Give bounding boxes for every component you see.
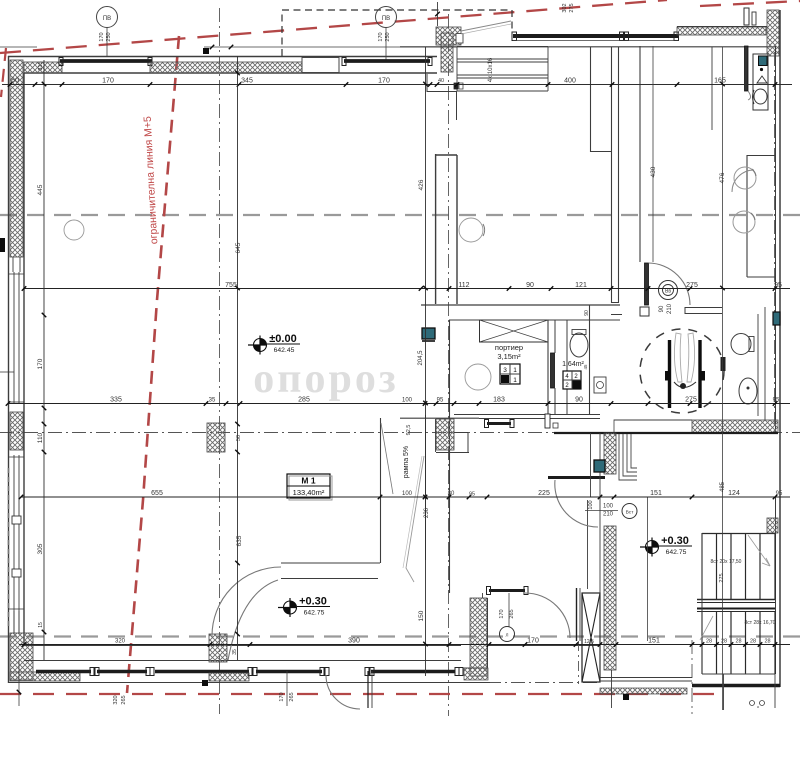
svg-text:642.75: 642.75 xyxy=(304,610,325,617)
svg-text:40: 40 xyxy=(438,78,444,84)
svg-text:90: 90 xyxy=(659,305,665,312)
svg-text:80: 80 xyxy=(448,491,455,497)
svg-text:28: 28 xyxy=(706,639,712,645)
svg-text:170: 170 xyxy=(527,638,539,645)
svg-text:100: 100 xyxy=(588,500,594,509)
svg-text:1: 1 xyxy=(513,367,517,374)
svg-text:390: 390 xyxy=(348,638,360,645)
svg-text:635: 635 xyxy=(236,535,243,546)
svg-text:236: 236 xyxy=(424,507,430,518)
svg-text:302: 302 xyxy=(562,3,568,12)
svg-text:305: 305 xyxy=(37,543,44,554)
svg-text:642.45: 642.45 xyxy=(274,347,295,354)
svg-text:45: 45 xyxy=(583,364,588,370)
svg-text:28: 28 xyxy=(721,639,727,645)
svg-text:335: 335 xyxy=(110,397,122,404)
svg-text:92,5: 92,5 xyxy=(406,425,412,436)
svg-text:151: 151 xyxy=(648,638,660,645)
svg-text:28: 28 xyxy=(735,639,741,645)
svg-text:1,64m²: 1,64m² xyxy=(562,361,584,368)
svg-text:250: 250 xyxy=(106,32,112,41)
svg-text:95: 95 xyxy=(776,491,783,497)
svg-text:320: 320 xyxy=(115,639,126,645)
svg-text:275: 275 xyxy=(686,282,698,289)
svg-text:150: 150 xyxy=(418,610,425,621)
svg-text:Вст: Вст xyxy=(626,510,635,516)
svg-text:1: 1 xyxy=(513,377,517,384)
svg-text:112: 112 xyxy=(458,282,469,289)
svg-text:400: 400 xyxy=(564,78,576,85)
svg-text:426: 426 xyxy=(418,179,425,190)
svg-text:95: 95 xyxy=(469,492,475,498)
svg-text:28: 28 xyxy=(750,639,756,645)
svg-text:642.75: 642.75 xyxy=(666,549,687,556)
svg-text:170: 170 xyxy=(378,78,390,85)
svg-text:100: 100 xyxy=(402,398,413,404)
svg-text:60: 60 xyxy=(11,78,19,85)
svg-text:345: 345 xyxy=(241,78,253,85)
svg-text:170: 170 xyxy=(279,692,285,701)
svg-text:275: 275 xyxy=(569,3,575,12)
svg-text:опороз: опороз xyxy=(253,356,398,402)
svg-text:28: 28 xyxy=(764,639,770,645)
svg-text:151: 151 xyxy=(650,490,662,497)
svg-text:121: 121 xyxy=(575,282,587,289)
svg-text:90: 90 xyxy=(584,310,590,316)
svg-text:170: 170 xyxy=(37,358,44,369)
svg-text:12,5: 12,5 xyxy=(584,639,594,645)
svg-text:225: 225 xyxy=(538,490,550,497)
svg-text:204,5: 204,5 xyxy=(418,350,424,366)
svg-text:170: 170 xyxy=(378,32,384,41)
svg-text:95: 95 xyxy=(774,282,782,289)
svg-text:90: 90 xyxy=(526,282,534,289)
svg-text:рампа 5%: рампа 5% xyxy=(403,446,410,478)
svg-text:210: 210 xyxy=(667,303,673,314)
svg-text:265: 265 xyxy=(121,695,127,704)
svg-text:4x 10x16: 4x 10x16 xyxy=(488,57,494,82)
svg-text:90: 90 xyxy=(575,397,583,404)
svg-text:ПВ: ПВ xyxy=(103,16,111,22)
svg-text:645: 645 xyxy=(235,242,242,253)
svg-text:95: 95 xyxy=(773,398,780,404)
svg-text:+0.30: +0.30 xyxy=(661,535,689,547)
svg-text:250: 250 xyxy=(385,32,391,41)
svg-text:275: 275 xyxy=(685,397,697,404)
svg-text:ПВ: ПВ xyxy=(382,16,390,22)
svg-text:445: 445 xyxy=(37,184,44,195)
svg-text:Л: Л xyxy=(506,633,509,638)
svg-text:124: 124 xyxy=(728,490,740,497)
svg-text:50: 50 xyxy=(236,435,242,441)
svg-text:3: 3 xyxy=(503,367,507,374)
svg-text:170: 170 xyxy=(99,32,105,41)
svg-text:35: 35 xyxy=(232,649,238,655)
svg-text:100: 100 xyxy=(402,491,413,497)
svg-text:265: 265 xyxy=(509,609,515,618)
svg-text:±0.00: ±0.00 xyxy=(269,333,296,345)
svg-text:485: 485 xyxy=(720,481,726,492)
svg-text:100: 100 xyxy=(603,504,614,510)
svg-text:170: 170 xyxy=(499,609,505,618)
svg-text:285: 285 xyxy=(298,397,310,404)
svg-text:476: 476 xyxy=(719,172,726,183)
svg-text:755: 755 xyxy=(225,282,237,289)
svg-text:110: 110 xyxy=(37,432,44,443)
svg-text:35: 35 xyxy=(209,398,216,404)
svg-text:133,40m²: 133,40m² xyxy=(293,488,325,497)
svg-text:8ст 20х 17,50: 8ст 20х 17,50 xyxy=(711,559,742,565)
svg-text:210: 210 xyxy=(603,512,614,518)
svg-text:15: 15 xyxy=(38,622,44,628)
svg-text:265: 265 xyxy=(289,692,295,701)
svg-text:М 1: М 1 xyxy=(301,476,315,486)
svg-text:315: 315 xyxy=(38,61,44,70)
svg-text:8ст 28х 16,70: 8ст 28х 16,70 xyxy=(745,620,776,626)
svg-text:Вв: Вв xyxy=(665,289,671,295)
svg-text:430: 430 xyxy=(650,166,657,177)
svg-text:275: 275 xyxy=(719,573,725,582)
svg-text:183: 183 xyxy=(493,397,505,404)
svg-text:портиер: портиер xyxy=(495,343,523,352)
svg-text:320: 320 xyxy=(113,695,119,704)
svg-text:655: 655 xyxy=(151,490,163,497)
svg-text:95: 95 xyxy=(437,398,444,404)
svg-text:+0.30: +0.30 xyxy=(299,596,327,608)
svg-text:165: 165 xyxy=(714,78,726,85)
svg-text:170: 170 xyxy=(102,78,114,85)
svg-text:3,15m²: 3,15m² xyxy=(497,352,521,361)
